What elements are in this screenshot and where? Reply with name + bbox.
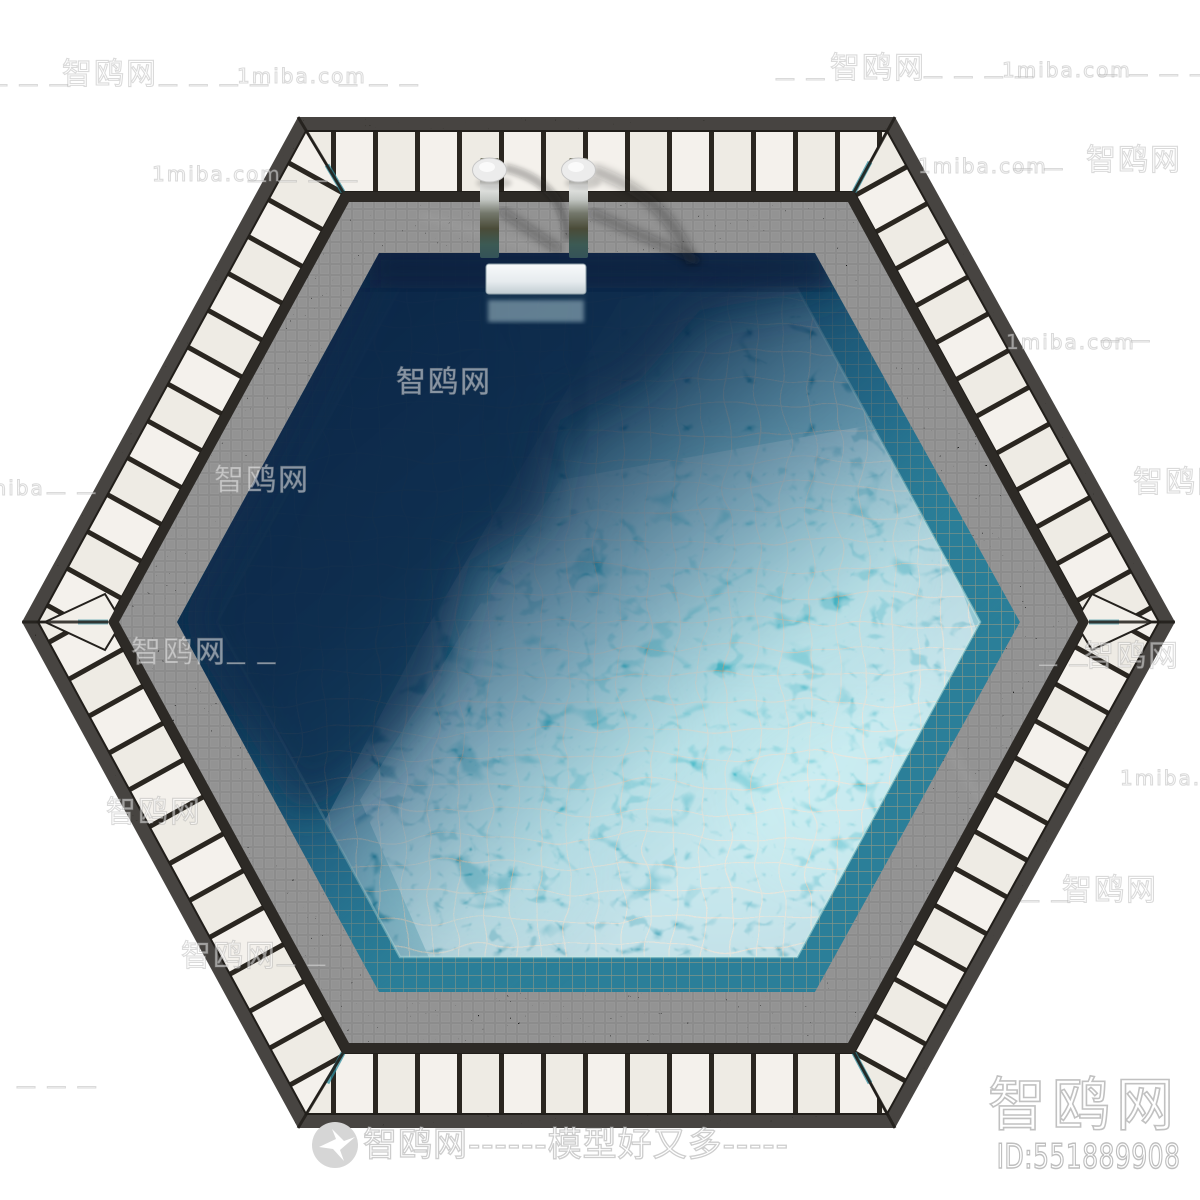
ladder-steps: [486, 264, 586, 322]
pool-render: [0, 0, 1200, 1200]
render-canvas: 智鸥网------模型好又多----- 智鸥网 ID:551889908 — —…: [0, 0, 1200, 1200]
